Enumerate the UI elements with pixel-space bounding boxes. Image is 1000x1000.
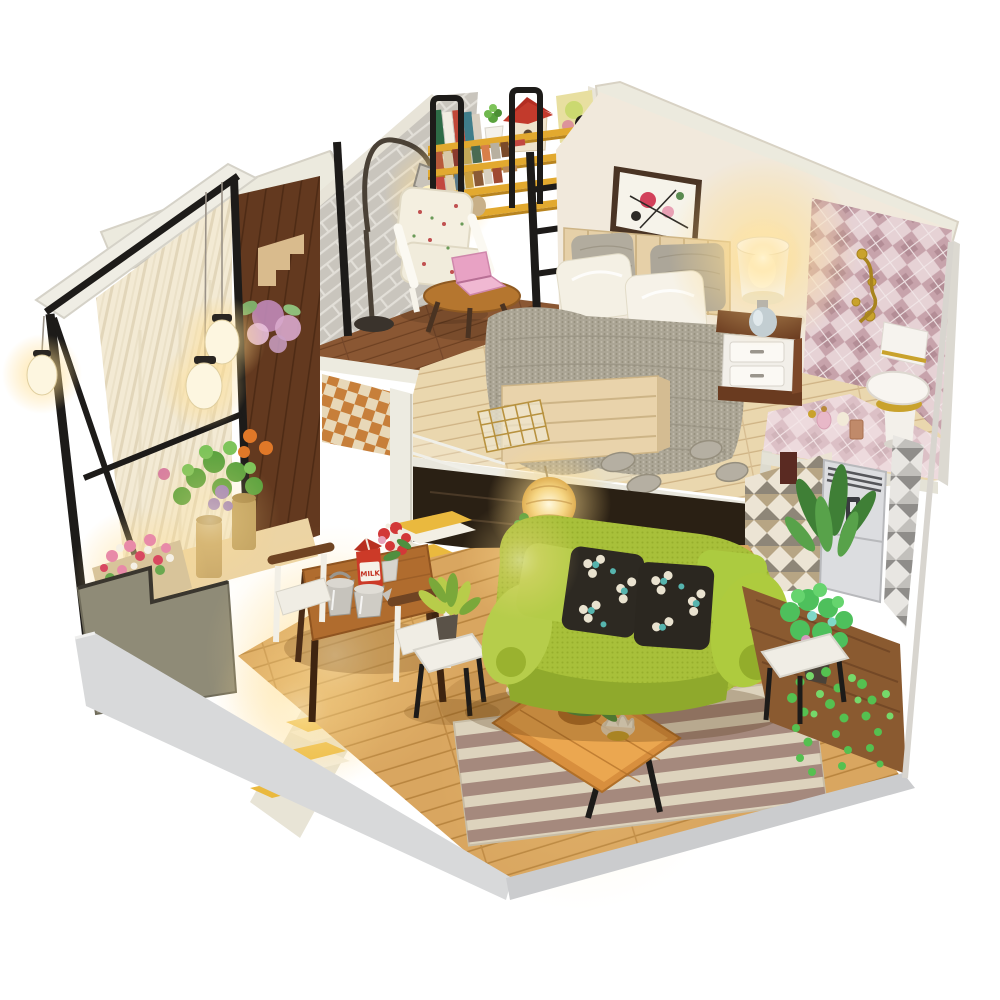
- dollhouse-illustration: MILK: [0, 0, 1000, 1000]
- floral-cushion-right: [633, 561, 715, 650]
- dollhouse-photo: MILK: [0, 0, 1000, 1000]
- doorway-sliver: [780, 452, 797, 484]
- milk-label: MILK: [360, 569, 381, 578]
